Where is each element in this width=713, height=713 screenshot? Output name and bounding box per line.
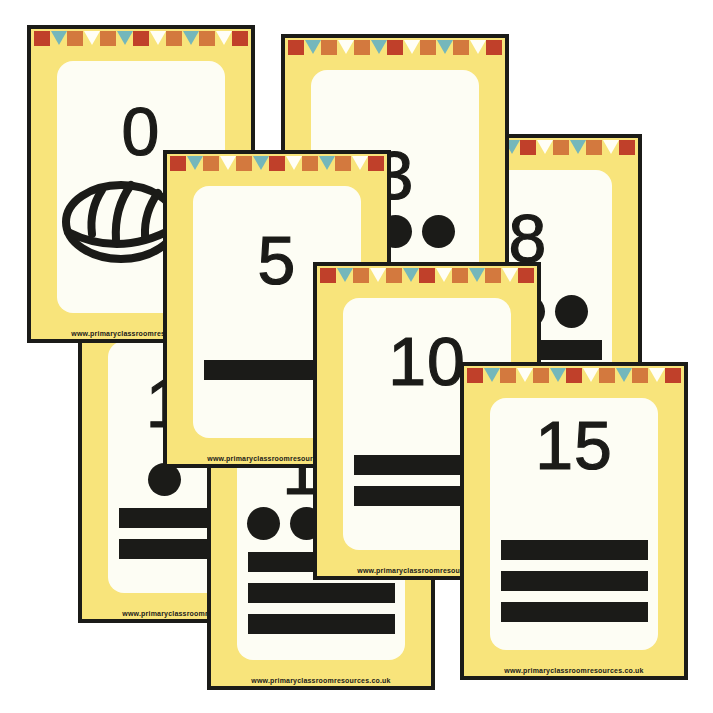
mayan-bar	[501, 571, 648, 591]
mayan-dot	[247, 507, 280, 540]
bunting-flag-square	[288, 40, 304, 55]
bunting-flag-triangle	[305, 40, 321, 54]
bunting-flag-square	[518, 268, 534, 283]
bunting-flag-square	[387, 40, 403, 55]
bunting-flag-triangle	[570, 140, 586, 154]
mayan-bar	[248, 614, 395, 634]
bunting-flag-triangle	[84, 31, 100, 45]
bunting-flag-square	[34, 31, 50, 46]
mayan-dot	[422, 215, 455, 248]
bunting-flag-square	[320, 268, 336, 283]
bunting-strip	[34, 31, 248, 49]
bunting-strip	[288, 40, 502, 58]
bunting-flag-triangle	[286, 156, 302, 170]
bunting-flag-triangle	[117, 31, 133, 45]
bunting-flag-square	[599, 368, 615, 383]
bunting-flag-square	[467, 368, 483, 383]
bunting-flag-triangle	[517, 368, 533, 382]
bunting-flag-square	[452, 268, 468, 283]
bunting-flag-square	[386, 268, 402, 283]
bunting-flag-square	[420, 40, 436, 55]
bunting-flag-triangle	[469, 268, 485, 282]
bunting-flag-square	[500, 368, 516, 383]
bunting-flag-square	[232, 31, 248, 46]
bunting-flag-square	[486, 40, 502, 55]
bunting-flag-square	[368, 156, 384, 171]
bunting-flag-square	[619, 140, 635, 155]
bunting-flag-triangle	[370, 268, 386, 282]
bunting-flag-square	[586, 140, 602, 155]
bunting-flag-square	[199, 31, 215, 46]
bunting-flag-square	[302, 156, 318, 171]
bunting-flag-triangle	[603, 140, 619, 154]
bunting-flag-triangle	[220, 156, 236, 170]
bunting-flag-triangle	[150, 31, 166, 45]
mayan-dot	[555, 295, 588, 328]
bunting-flag-square	[269, 156, 285, 171]
bunting-flag-square	[520, 140, 536, 155]
bunting-flag-triangle	[502, 268, 518, 282]
bunting-flag-square	[353, 268, 369, 283]
bunting-flag-square	[203, 156, 219, 171]
bunting-strip	[320, 268, 534, 286]
bunting-flag-triangle	[616, 368, 632, 382]
mayan-bar	[248, 583, 395, 603]
bunting-flag-square	[533, 368, 549, 383]
bunting-flag-triangle	[338, 40, 354, 54]
mayan-dots-row	[247, 507, 323, 540]
bunting-flag-square	[566, 368, 582, 383]
bunting-flag-triangle	[649, 368, 665, 382]
bunting-flag-square	[236, 156, 252, 171]
bunting-flag-square	[166, 31, 182, 46]
bunting-flag-square	[321, 40, 337, 55]
footer-url: www.primaryclassroomresources.co.uk	[464, 667, 684, 674]
bunting-flag-square	[419, 268, 435, 283]
card-number: 15	[464, 411, 684, 479]
bunting-flag-triangle	[183, 31, 199, 45]
bunting-flag-square	[67, 31, 83, 46]
bunting-flag-triangle	[583, 368, 599, 382]
bunting-flag-square	[485, 268, 501, 283]
bunting-flag-triangle	[404, 40, 420, 54]
mayan-symbols	[464, 540, 684, 622]
cards-collage: 11 www.primaryclassroomresources.co.uk 8…	[0, 0, 713, 713]
bunting-flag-triangle	[319, 156, 335, 170]
bunting-flag-triangle	[337, 268, 353, 282]
bunting-flag-triangle	[470, 40, 486, 54]
bunting-flag-triangle	[550, 368, 566, 382]
bunting-flag-triangle	[537, 140, 553, 154]
bunting-flag-square	[133, 31, 149, 46]
footer-url: www.primaryclassroomresources.co.uk	[211, 677, 431, 684]
bunting-flag-square	[665, 368, 681, 383]
bunting-flag-square	[453, 40, 469, 55]
mayan-bar	[501, 602, 648, 622]
mayan-bars	[501, 540, 648, 622]
bunting-flag-triangle	[436, 268, 452, 282]
bunting-flag-triangle	[484, 368, 500, 382]
bunting-strip	[467, 368, 681, 386]
bunting-flag-triangle	[51, 31, 67, 45]
bunting-flag-triangle	[403, 268, 419, 282]
mayan-number-card: 15 www.primaryclassroomresources.co.uk	[460, 362, 688, 680]
bunting-flag-triangle	[253, 156, 269, 170]
bunting-flag-square	[335, 156, 351, 171]
bunting-flag-square	[553, 140, 569, 155]
bunting-strip	[170, 156, 384, 174]
bunting-flag-square	[354, 40, 370, 55]
bunting-flag-triangle	[371, 40, 387, 54]
bunting-flag-triangle	[437, 40, 453, 54]
bunting-flag-triangle	[352, 156, 368, 170]
bunting-flag-triangle	[187, 156, 203, 170]
mayan-bar	[501, 540, 648, 560]
bunting-flag-square	[100, 31, 116, 46]
bunting-flag-triangle	[216, 31, 232, 45]
bunting-flag-square	[632, 368, 648, 383]
bunting-flag-square	[170, 156, 186, 171]
